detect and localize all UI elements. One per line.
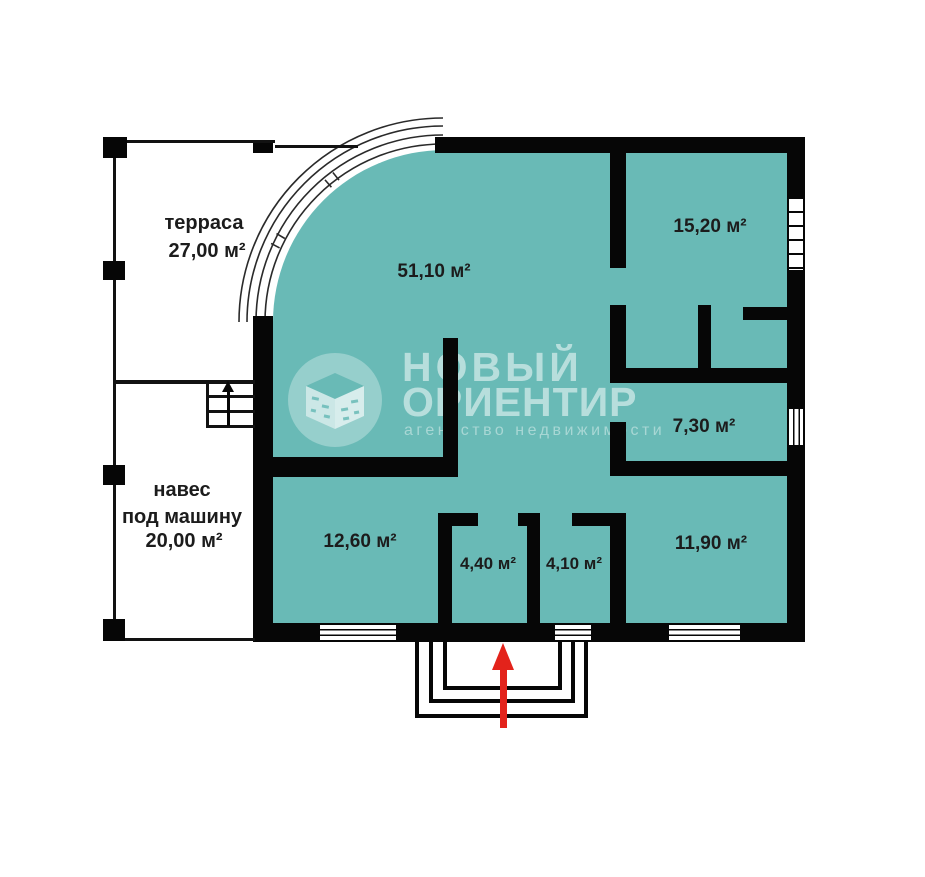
stairs-bottom-edge	[206, 425, 255, 428]
wall-corridor-west	[443, 338, 458, 477]
wall-440-top	[438, 513, 478, 526]
window-hallway	[787, 407, 805, 447]
room-label-1260-area: 12,60 м²	[323, 532, 396, 553]
room-label-1190-area: 11,90 м²	[675, 534, 747, 555]
room-label-terrace-name: терраса	[165, 212, 244, 234]
room-label-410-area: 4,10 м²	[546, 555, 602, 574]
wall-top	[435, 137, 805, 153]
stairs-arrow-icon	[222, 381, 234, 392]
room-label-carport-area: 20,00 м²	[145, 530, 222, 552]
terrace-wall-top2	[275, 145, 358, 148]
wall-left	[253, 316, 273, 642]
stairs-arrow-shaft	[227, 390, 230, 426]
wall-closet-stub	[743, 307, 787, 320]
wall-410-top	[572, 513, 626, 526]
wall-spine-seg1	[610, 153, 626, 268]
window-1260	[318, 623, 398, 642]
room-label-carport-line1: навес	[153, 479, 210, 501]
entrance-arrow-shaft	[500, 668, 507, 728]
room-label-bedroom-area: 15,20 м²	[673, 217, 746, 238]
wall-440-left	[438, 513, 452, 623]
watermark-title-line2: ОРИЕНТИР	[402, 379, 638, 426]
carport-wall-left	[113, 383, 116, 641]
room-label-living-area: 51,10 м²	[397, 262, 470, 283]
terrace-wall-top	[113, 140, 275, 143]
room-label-terrace-area: 27,00 м²	[168, 240, 245, 262]
wall-closet-divider	[698, 305, 711, 383]
pillar-carport-mid	[103, 465, 125, 485]
wall-below-hallway	[610, 461, 787, 476]
logo-box-icon	[288, 353, 382, 447]
window-bedroom	[787, 197, 805, 272]
stairs-left-edge	[206, 382, 209, 428]
window-1190	[667, 623, 742, 642]
stairs-tread-1	[206, 395, 255, 398]
carport-wall-bottom	[113, 638, 255, 641]
window-410	[553, 623, 593, 642]
room-label-hallway-area: 7,30 м²	[673, 417, 736, 438]
wall-440-410-divider	[527, 513, 540, 623]
floor-plan-canvas: НОВЫЙ ОРИЕНТИР агентство недвижимости	[0, 0, 925, 877]
pillar-terrace-mid	[103, 261, 125, 280]
pillar-carport-corner	[103, 619, 125, 641]
wall-spine-seg4	[610, 513, 626, 623]
stairs-tread-2	[206, 410, 255, 413]
room-label-carport-line2: под машину	[122, 506, 242, 528]
pillar-terrace-corner	[103, 137, 127, 158]
room-label-440-area: 4,40 м²	[460, 555, 516, 574]
entrance-arrow-icon	[492, 643, 514, 670]
wall-living-south	[273, 457, 458, 477]
